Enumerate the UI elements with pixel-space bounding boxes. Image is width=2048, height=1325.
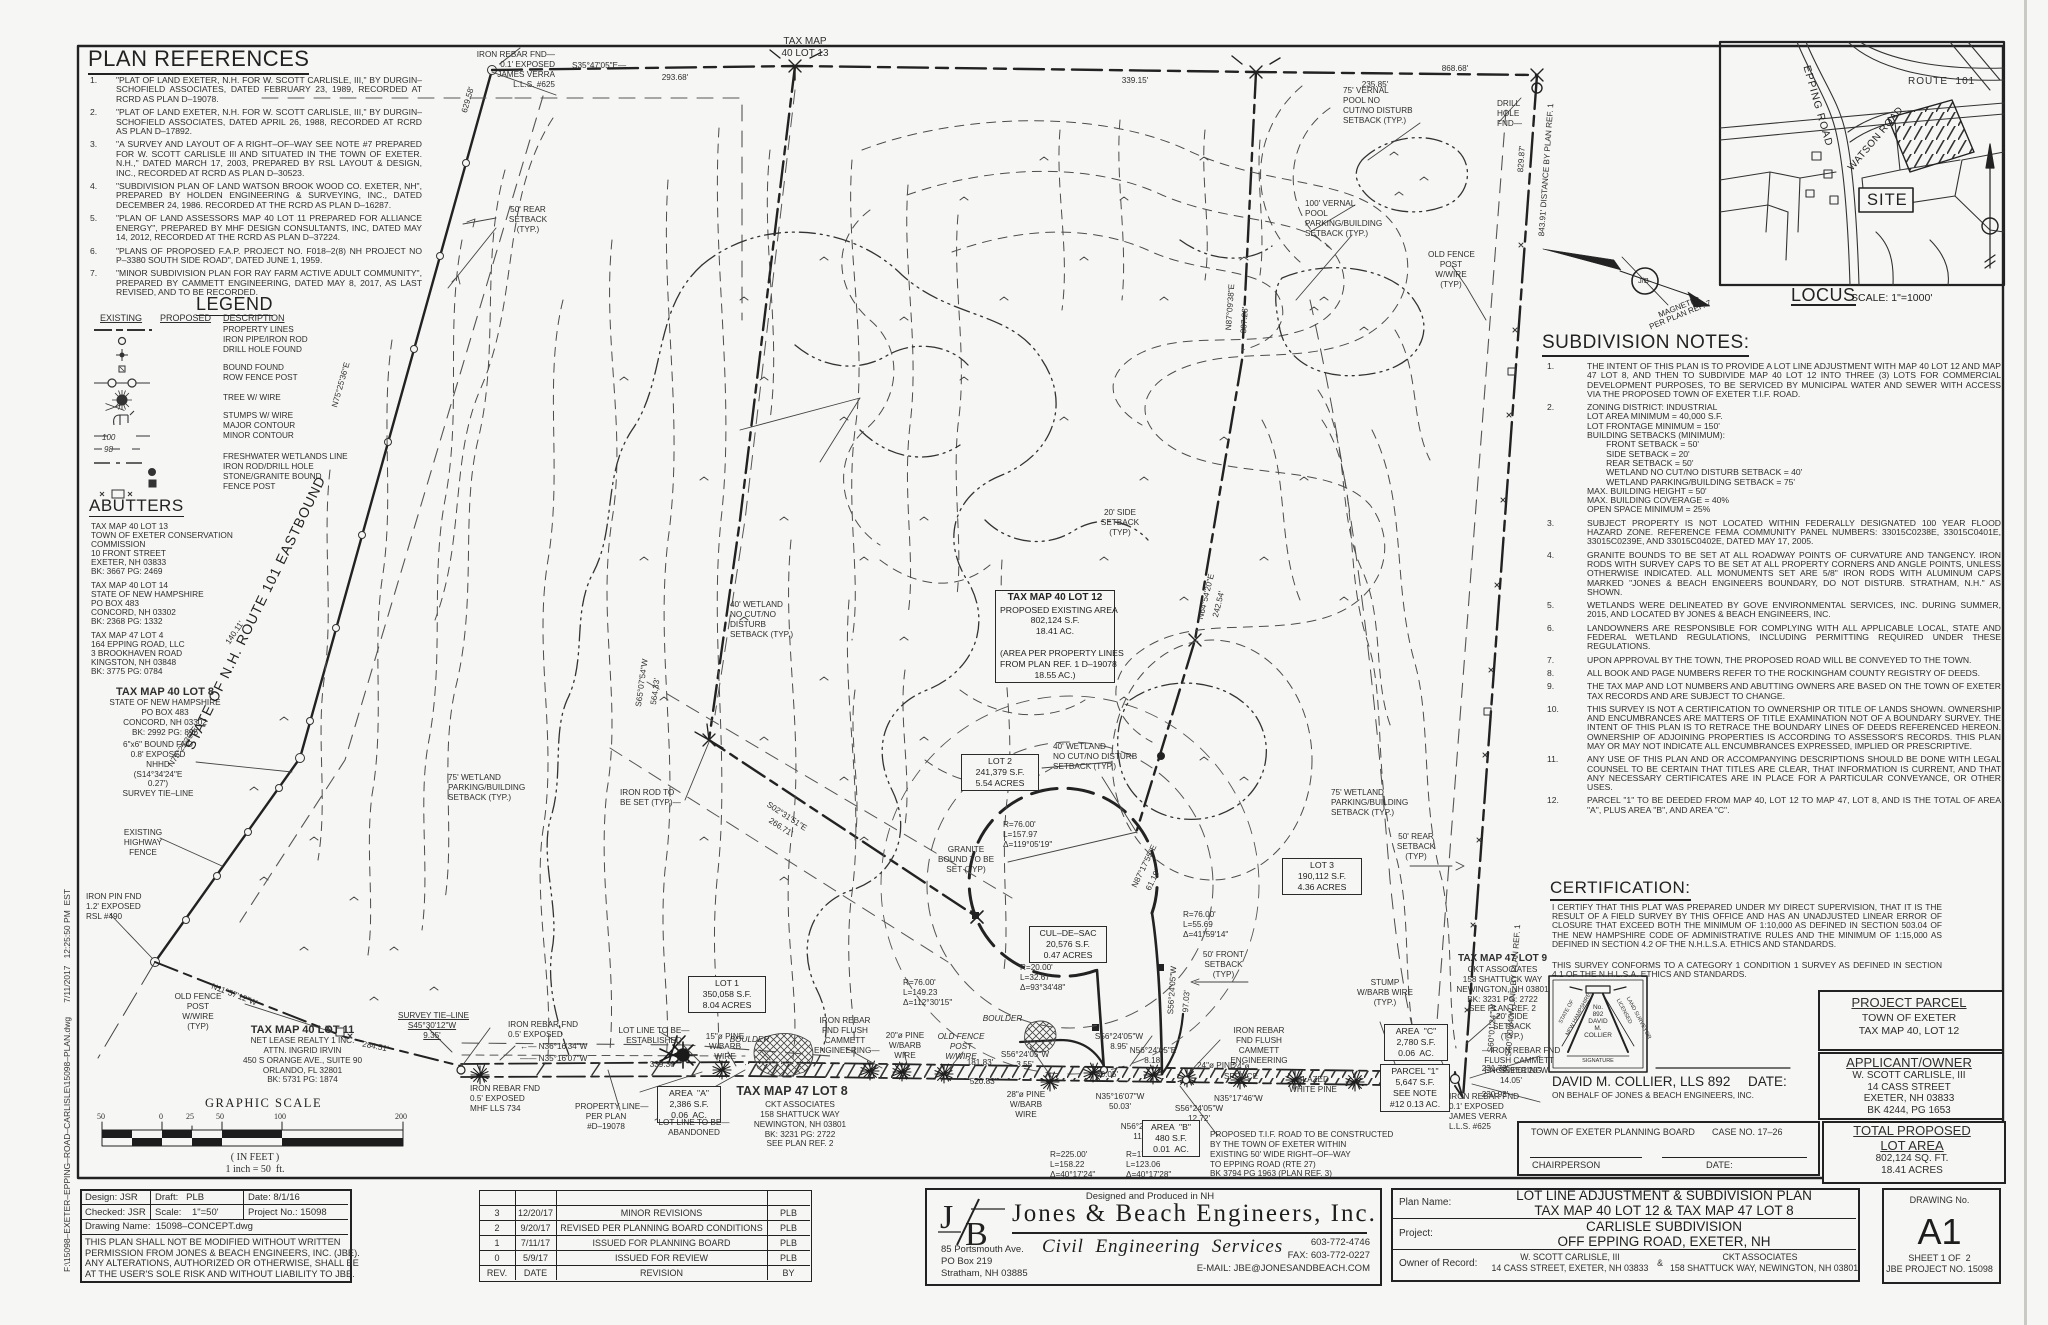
- svg-text:J: J: [940, 1199, 953, 1236]
- svg-text:98: 98: [104, 445, 113, 454]
- svg-text:100: 100: [102, 433, 116, 442]
